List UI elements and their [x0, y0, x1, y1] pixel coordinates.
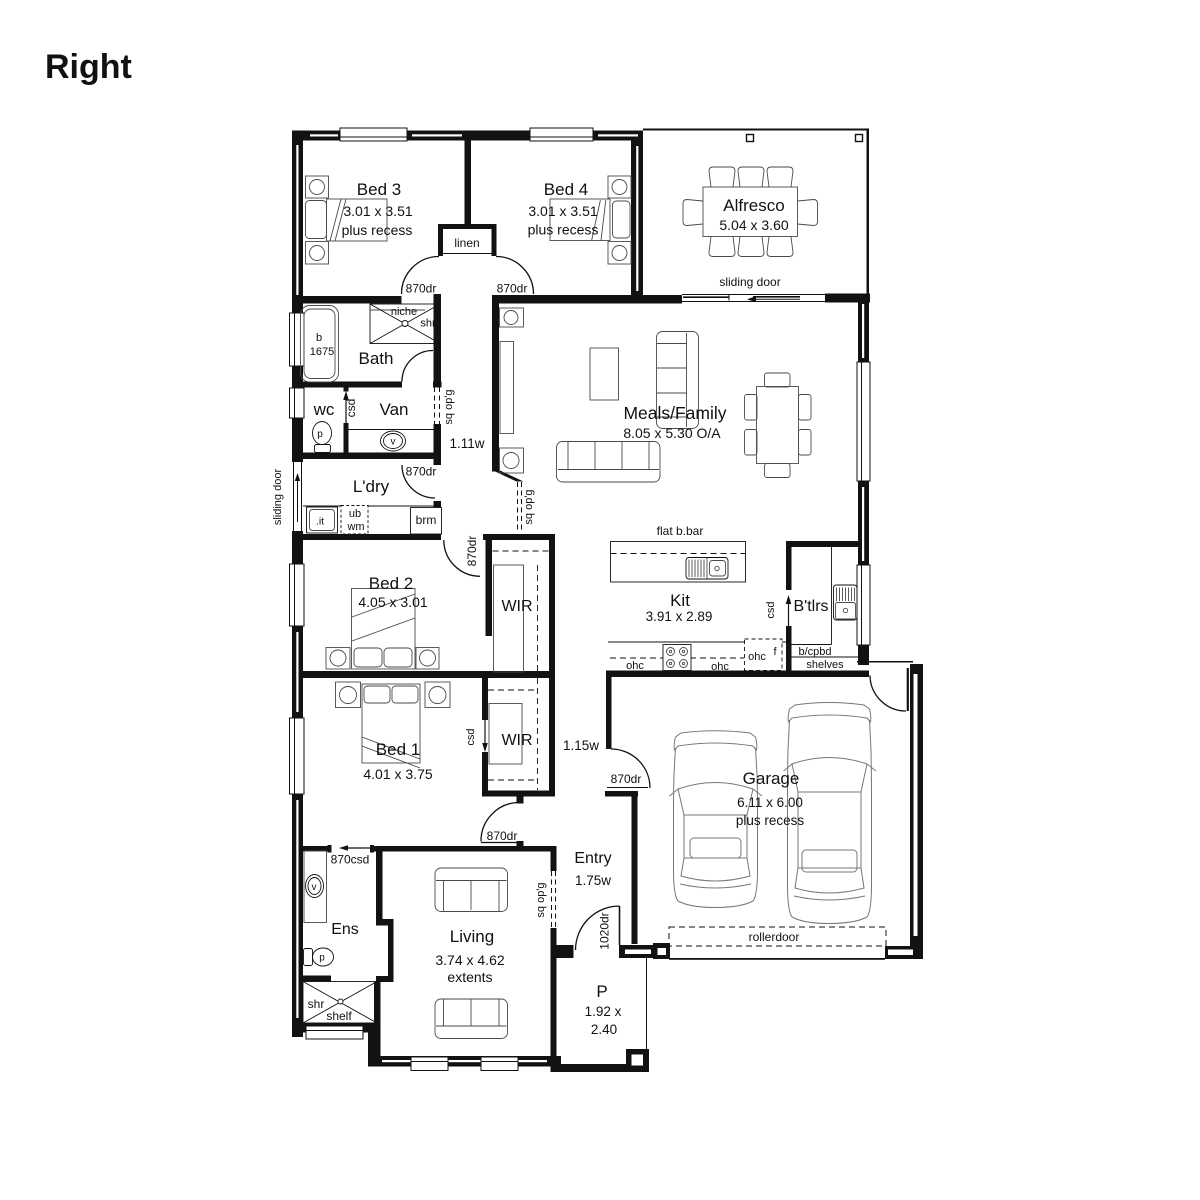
svg-text:csd: csd [344, 399, 358, 418]
svg-text:Bath: Bath [359, 349, 394, 368]
svg-text:v: v [391, 437, 396, 448]
svg-text:rollerdoor: rollerdoor [749, 930, 800, 944]
svg-text:B'tlrs: B'tlrs [793, 598, 828, 615]
svg-text:shr: shr [420, 318, 436, 330]
svg-text:870dr: 870dr [611, 772, 642, 786]
svg-text:ohc: ohc [748, 651, 766, 663]
svg-text:8.05 x 5.30 O/A: 8.05 x 5.30 O/A [623, 425, 721, 441]
svg-text:5.04 x 3.60: 5.04 x 3.60 [719, 217, 788, 233]
svg-text:shr: shr [308, 997, 325, 1011]
svg-text:ub: ub [349, 508, 361, 520]
svg-text:Ens: Ens [331, 921, 359, 938]
svg-text:1020dr: 1020dr [598, 912, 612, 949]
svg-text:extents: extents [447, 969, 492, 985]
svg-text:plus recess: plus recess [528, 222, 599, 238]
svg-text:shelves: shelves [806, 659, 844, 671]
svg-text:csd: csd [765, 601, 777, 618]
svg-text:3.01 x 3.51: 3.01 x 3.51 [343, 203, 412, 219]
svg-text:Kit: Kit [670, 591, 690, 610]
svg-text:3.74 x 4.62: 3.74 x 4.62 [435, 952, 504, 968]
svg-text:Entry: Entry [574, 850, 611, 867]
svg-text:870dr: 870dr [406, 465, 437, 479]
svg-text:plus recess: plus recess [736, 813, 805, 828]
svg-text:4.01 x 3.75: 4.01 x 3.75 [363, 766, 432, 782]
svg-text:Garage: Garage [743, 769, 800, 788]
svg-text:brm: brm [416, 513, 437, 527]
svg-text:sliding door: sliding door [719, 275, 780, 289]
svg-text:1.15w: 1.15w [563, 738, 599, 753]
svg-text:Van: Van [380, 400, 409, 419]
svg-text:Right: Right [45, 48, 132, 86]
svg-text:b/cpbd: b/cpbd [798, 646, 831, 658]
svg-text:v: v [312, 882, 317, 893]
svg-text:1675: 1675 [310, 346, 334, 358]
svg-text:sliding door: sliding door [272, 469, 284, 526]
svg-text:1.75w: 1.75w [575, 873, 611, 888]
svg-text:3.01 x 3.51: 3.01 x 3.51 [528, 203, 597, 219]
svg-text:sq op'g: sq op'g [443, 389, 455, 424]
svg-text:flat b.bar: flat b.bar [657, 524, 704, 538]
svg-text:1.11w: 1.11w [449, 436, 484, 451]
svg-text:4.05 x 3.01: 4.05 x 3.01 [358, 594, 427, 610]
svg-text:P: P [596, 982, 607, 1001]
svg-text:1.92 x: 1.92 x [585, 1004, 622, 1019]
svg-text:Meals/Family: Meals/Family [623, 403, 726, 423]
svg-text:3.91 x 2.89: 3.91 x 2.89 [646, 609, 713, 624]
svg-text:870dr: 870dr [406, 282, 437, 296]
svg-text:Bed 3: Bed 3 [357, 180, 401, 199]
svg-text:niche: niche [391, 306, 417, 318]
svg-text:shelf: shelf [326, 1009, 352, 1023]
svg-text:870csd: 870csd [331, 853, 370, 867]
svg-text:Bed 4: Bed 4 [544, 180, 588, 199]
svg-text:linen: linen [454, 236, 479, 250]
svg-text:.it: .it [316, 516, 324, 528]
svg-text:6.11 x 6.00: 6.11 x 6.00 [737, 795, 803, 810]
svg-text:plus recess: plus recess [342, 222, 413, 238]
svg-text:WIR: WIR [501, 732, 532, 749]
svg-text:L'dry: L'dry [353, 477, 390, 496]
svg-text:csd: csd [465, 728, 477, 745]
svg-text:Bed 2: Bed 2 [369, 574, 413, 593]
svg-text:p: p [317, 429, 323, 440]
svg-text:Bed 1: Bed 1 [376, 740, 420, 759]
svg-text:2.40: 2.40 [591, 1022, 617, 1037]
svg-text:wc: wc [313, 400, 335, 419]
svg-text:b: b [316, 332, 322, 344]
svg-text:ohc: ohc [711, 661, 729, 673]
svg-text:ohc: ohc [626, 660, 644, 672]
svg-text:870dr: 870dr [487, 829, 518, 843]
svg-text:Alfresco: Alfresco [723, 196, 784, 215]
svg-text:Living: Living [450, 927, 494, 946]
svg-text:p: p [319, 953, 325, 964]
svg-text:sq op'g: sq op'g [535, 882, 547, 917]
svg-text:sq op'g: sq op'g [523, 489, 535, 524]
svg-text:wm: wm [346, 521, 364, 533]
svg-text:870dr: 870dr [465, 536, 479, 567]
svg-text:870dr: 870dr [497, 282, 528, 296]
svg-text:WIR: WIR [501, 598, 532, 615]
